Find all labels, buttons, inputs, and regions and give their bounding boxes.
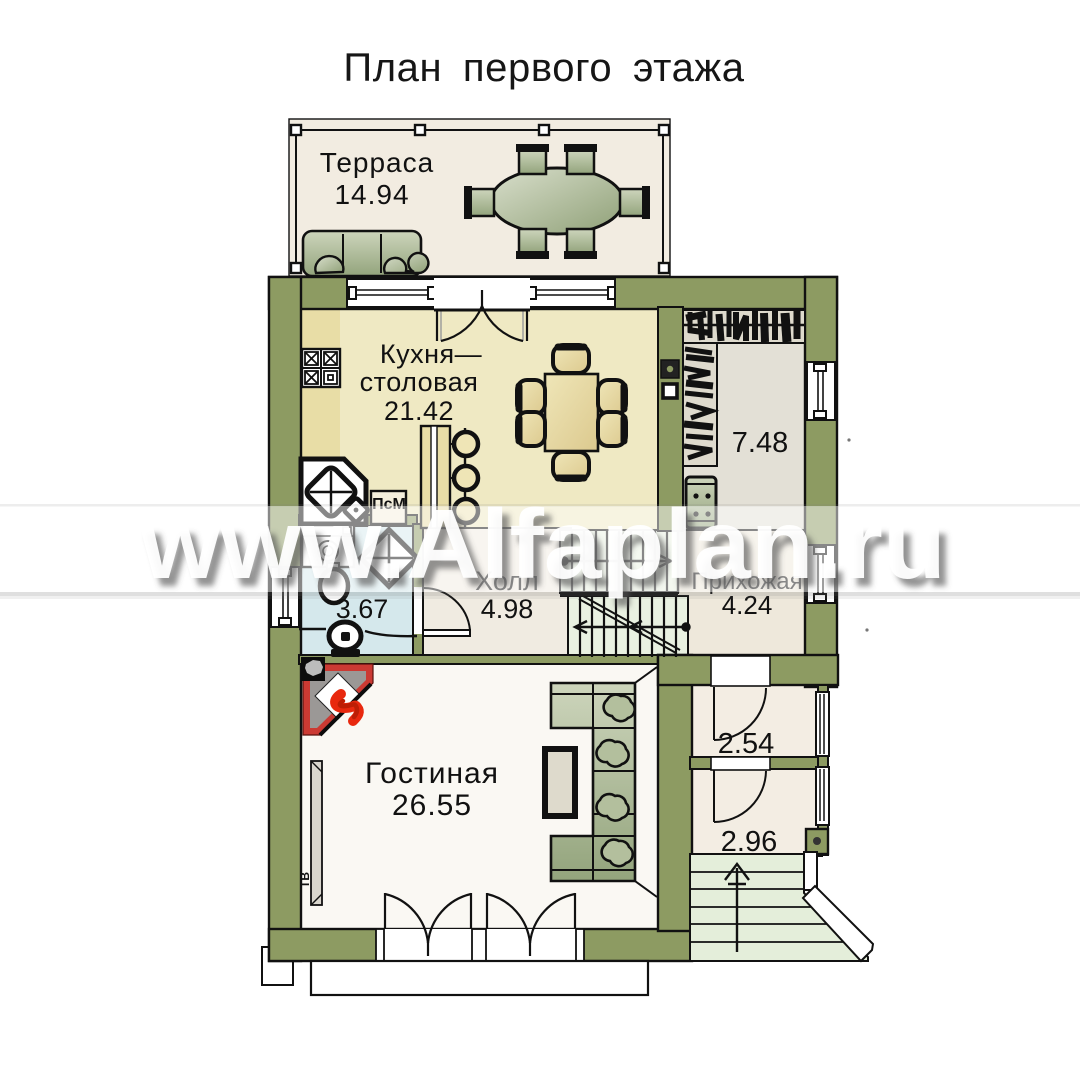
svg-text:www.Alfaplan.ru: www.Alfaplan.ru (139, 489, 946, 599)
svg-text:Кухня—: Кухня— (380, 339, 482, 369)
svg-text:План первого этажа: План первого этажа (343, 46, 744, 90)
svg-text:Терраса: Терраса (320, 147, 434, 178)
svg-text:14.94: 14.94 (334, 179, 409, 210)
svg-text:26.55: 26.55 (392, 789, 472, 822)
svg-text:2.54: 2.54 (718, 728, 774, 760)
svg-text:ТВ: ТВ (298, 872, 312, 888)
svg-text:столовая: столовая (360, 367, 479, 397)
svg-text:21.42: 21.42 (384, 396, 454, 426)
svg-text:7.48: 7.48 (732, 427, 788, 459)
svg-text:Гостиная: Гостиная (365, 757, 499, 790)
